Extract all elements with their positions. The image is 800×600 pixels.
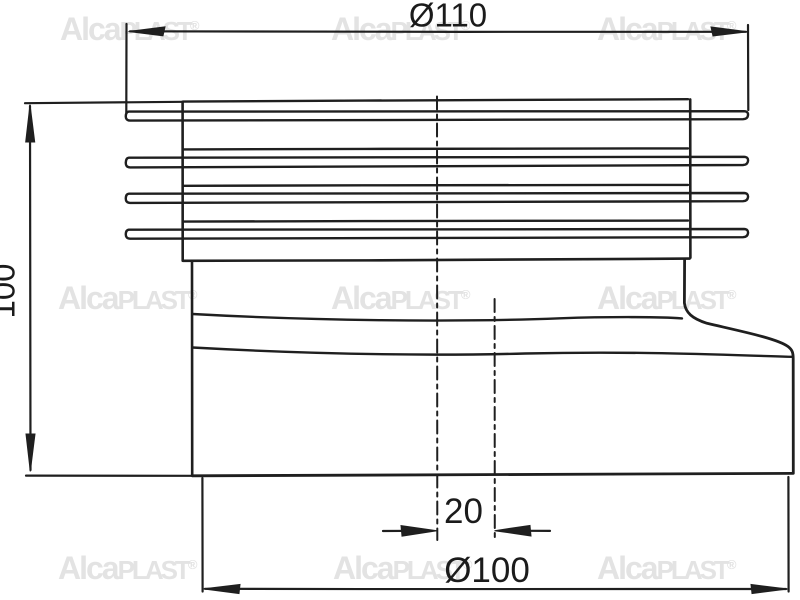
svg-text:AlcaPLAST®: AlcaPLAST® — [331, 280, 471, 316]
svg-text:AlcaPLAST®: AlcaPLAST® — [58, 550, 198, 586]
svg-text:AlcaPLAST®: AlcaPLAST® — [58, 280, 198, 316]
svg-text:AlcaPLAST®: AlcaPLAST® — [597, 280, 737, 316]
svg-text:Ø110: Ø110 — [409, 0, 487, 34]
svg-text:20: 20 — [444, 492, 483, 531]
svg-text:Ø100: Ø100 — [444, 551, 530, 590]
svg-text:100: 100 — [0, 263, 22, 318]
svg-text:AlcaPLAST®: AlcaPLAST® — [60, 11, 200, 47]
svg-text:AlcaPLAST®: AlcaPLAST® — [597, 550, 737, 586]
